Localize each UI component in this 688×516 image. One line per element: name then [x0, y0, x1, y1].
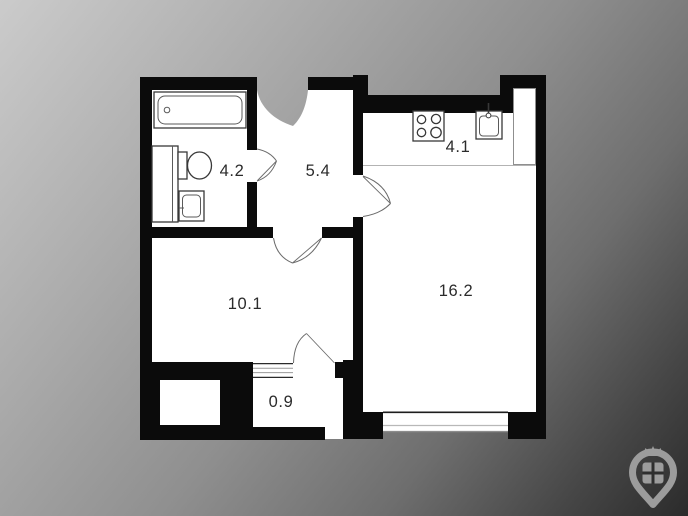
vent-shaft	[514, 89, 536, 165]
area-label-kitchen: 4.1	[446, 138, 471, 156]
room-hallway-floor	[257, 90, 353, 227]
threshold-steps	[253, 363, 293, 378]
area-label-living-room: 16.2	[439, 282, 474, 300]
stove-icon	[413, 111, 444, 141]
bathroom-cabinet-icon	[152, 146, 178, 222]
bathroom-sink-icon	[179, 191, 204, 221]
bathtub-icon	[154, 92, 246, 128]
bedroom-door-opening	[273, 227, 322, 238]
entrance-opening	[325, 427, 343, 439]
area-label-bathroom: 4.2	[220, 162, 245, 180]
toilet-icon	[178, 152, 212, 179]
room-living-floor	[363, 113, 536, 412]
floorplan-drawing: 4.2 5.4 4.1 16.2 10.1 0.9	[0, 0, 688, 516]
house-location-pin-icon	[633, 446, 674, 505]
entry-door-opening	[293, 363, 335, 378]
area-label-entry: 0.9	[269, 393, 294, 411]
area-label-bedroom: 10.1	[228, 295, 263, 313]
closet-niche	[160, 380, 220, 425]
floorplan-canvas: 4.2 5.4 4.1 16.2 10.1 0.9	[0, 0, 688, 516]
bathroom-door-opening	[247, 150, 257, 182]
living-door-opening	[353, 175, 363, 217]
area-label-hallway: 5.4	[306, 162, 331, 180]
window	[383, 412, 508, 432]
